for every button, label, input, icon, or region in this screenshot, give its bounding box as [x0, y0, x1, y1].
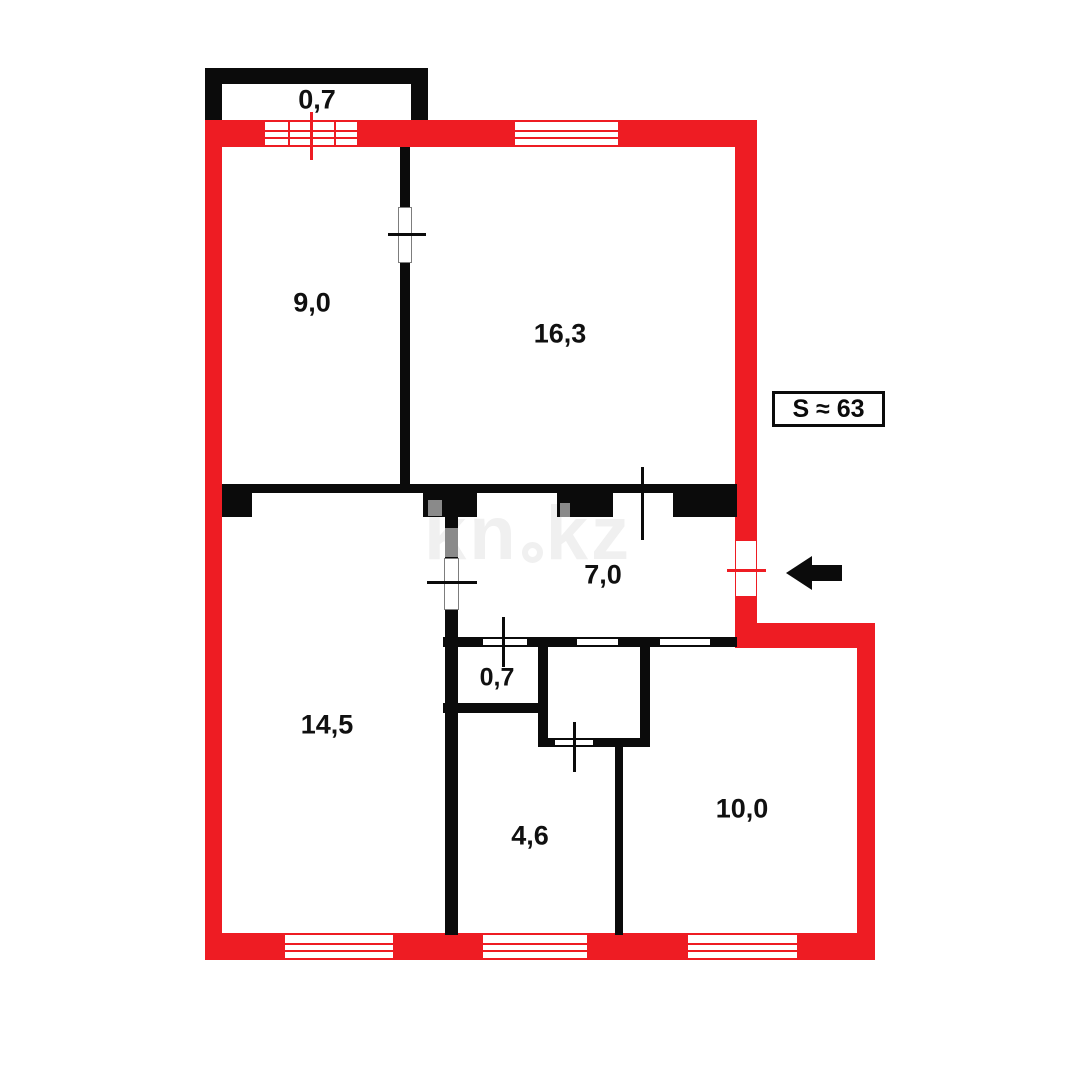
window-icon-bottom-right	[688, 935, 797, 958]
balcony-wall-top	[205, 68, 428, 84]
door-opening-room-10	[660, 639, 710, 645]
wall-shadow	[445, 528, 458, 557]
window-mullion	[285, 943, 393, 945]
window-mullion	[483, 943, 587, 945]
window-mullion	[288, 122, 290, 145]
door-opening-bathroom-top	[577, 639, 618, 645]
door-tick	[502, 617, 505, 667]
wall-middle-block-1	[222, 493, 252, 517]
exterior-wall-step	[735, 623, 875, 648]
door-opening-room-14-5	[444, 558, 459, 610]
entrance-arrow-shaft	[812, 565, 842, 581]
room-label-closet: 0,7	[480, 664, 515, 693]
entrance-arrow-icon	[786, 556, 812, 590]
room-label-bottom-right: 10,0	[716, 794, 769, 825]
floor-plan: knkz	[0, 0, 1080, 1080]
window-mullion	[515, 137, 618, 139]
exterior-wall-left	[205, 120, 222, 960]
window-mullion	[334, 122, 336, 145]
window-tick	[310, 112, 313, 160]
door-tick	[641, 467, 644, 540]
wall-bathroom-right	[640, 637, 650, 747]
entrance-door-tick	[727, 569, 766, 572]
door-tick	[427, 581, 477, 584]
wall-between-bottom-rooms	[615, 745, 623, 935]
window-mullion	[483, 950, 587, 952]
door-opening-closet	[483, 639, 527, 645]
watermark-dot-icon	[522, 542, 543, 563]
window-mullion	[515, 130, 618, 132]
window-mullion	[285, 950, 393, 952]
wall-between-top-rooms	[400, 147, 410, 484]
wall-closet-bottom	[443, 703, 545, 713]
room-label-top-right: 16,3	[534, 319, 587, 350]
window-icon-top-right	[515, 122, 618, 145]
total-area-badge: S ≈ 63	[772, 391, 885, 427]
window-icon-bottom-middle	[483, 935, 587, 958]
window-mullion	[688, 950, 797, 952]
wall-middle-block-4	[673, 493, 737, 517]
window-icon-bottom-left	[285, 935, 393, 958]
door-tick	[573, 722, 576, 772]
wall-shadow	[560, 503, 570, 517]
room-label-bottom-middle: 4,6	[511, 821, 549, 852]
room-label-hallway: 7,0	[584, 560, 622, 591]
wall-middle-thin	[222, 484, 737, 493]
total-area-label: S ≈ 63	[792, 395, 864, 424]
wall-hall-left-lower	[445, 610, 458, 935]
window-mullion	[688, 943, 797, 945]
wall-shadow	[428, 500, 442, 516]
exterior-wall-right-lower	[857, 623, 875, 960]
door-tick	[388, 233, 426, 236]
room-label-balcony: 0,7	[298, 85, 336, 116]
room-label-top-left: 9,0	[293, 288, 331, 319]
wall-bathroom-left	[538, 647, 548, 745]
room-label-bottom-left: 14,5	[301, 710, 354, 741]
balcony-wall-right	[411, 68, 428, 120]
